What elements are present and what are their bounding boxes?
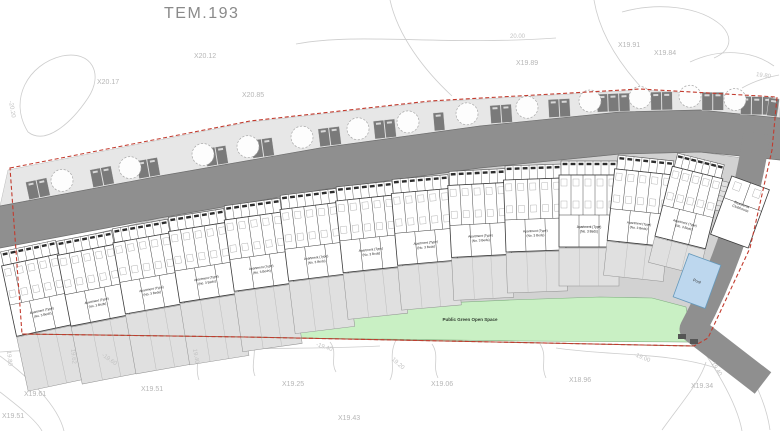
tree-icon [724, 89, 746, 111]
stall-label-mark [579, 163, 584, 165]
stall-label-mark [338, 188, 343, 191]
contour-line [556, 348, 716, 368]
stall-label-mark [402, 180, 407, 183]
stall-marking [716, 94, 721, 96]
stall-marking [551, 101, 556, 103]
stall-label-mark [523, 167, 528, 170]
stall-label-mark [418, 179, 423, 182]
contour-line [432, 344, 438, 378]
stall-label-mark [410, 179, 415, 182]
stall-label-mark [459, 173, 464, 176]
contour-line [662, 362, 706, 430]
stall-label-mark [394, 181, 399, 184]
stall-label-mark [507, 168, 512, 171]
stall-marking [492, 107, 497, 109]
stall-label-mark [370, 185, 375, 188]
parking-bay-group [597, 93, 630, 112]
stall-label-mark [595, 163, 600, 165]
stall-label-mark [667, 162, 672, 165]
site-plan-drawing: Apartment (Type)(No. 3 Beds)Apartment (T… [0, 0, 780, 431]
stall-label-mark [386, 183, 391, 186]
block-label-line1: Apartment (Type) [577, 225, 602, 229]
tree-icon [456, 103, 478, 125]
stall-marking [621, 95, 626, 97]
site-plan: Apartment (Type)(No. 3 Beds)Apartment (T… [0, 0, 780, 431]
stall-label-mark [635, 159, 640, 162]
stall-label-mark [563, 163, 568, 165]
contour-line [690, 53, 774, 66]
stall-label-mark [491, 171, 496, 174]
stall-label-mark [426, 178, 431, 181]
stall-label-mark [354, 186, 359, 189]
tree-icon [51, 169, 73, 191]
stall-label-mark [378, 184, 383, 187]
garden [452, 255, 514, 300]
contour-line [742, 75, 779, 88]
stall-label-mark [515, 167, 520, 170]
stall-marking [562, 101, 567, 103]
contour-line [540, 344, 546, 378]
contour-line [594, 0, 640, 86]
stall-label-mark [619, 157, 624, 160]
tree-icon [679, 85, 701, 107]
stall-marking [754, 99, 759, 101]
stall-label-mark [571, 163, 576, 165]
stall-label-mark [539, 166, 544, 169]
stall-label-mark [651, 160, 656, 163]
contour-line [390, 0, 452, 96]
tree-icon [397, 111, 419, 133]
contour-line [330, 342, 336, 372]
block-label-line2: (No. 3 Beds) [526, 233, 544, 238]
stall-label-mark [475, 172, 480, 175]
garden [506, 251, 567, 293]
stall-label-mark [531, 167, 536, 170]
stall-label-mark [362, 186, 367, 189]
stall-label-mark [483, 171, 488, 174]
contour-line [296, 38, 556, 44]
stall-label-mark [627, 158, 632, 161]
stall-label-mark [434, 177, 439, 180]
stall-label-mark [451, 173, 456, 176]
stall-marking [503, 106, 508, 108]
garden [398, 261, 462, 310]
site-marker [678, 334, 686, 339]
stall-marking [705, 94, 710, 96]
stall-label-mark [555, 166, 560, 169]
stall-label-mark [442, 176, 447, 179]
stall-label-mark [467, 172, 472, 175]
parking-bay-group [433, 112, 445, 131]
contour-line [0, 392, 42, 431]
site-marker [690, 339, 698, 344]
tree-icon [347, 118, 369, 140]
stall-label-mark [611, 163, 616, 165]
stall-label-mark [346, 187, 351, 190]
tree-icon [291, 126, 313, 148]
tree-icon [579, 90, 601, 112]
contour-line [622, 7, 729, 58]
stall-label-mark [499, 170, 504, 173]
stall-label-mark [659, 161, 664, 164]
tree-icon [516, 96, 538, 118]
contour-line [20, 55, 95, 136]
block-label-line2: (No. 3 Beds) [580, 230, 598, 234]
tree-icon [192, 143, 214, 165]
tree-icon [119, 157, 141, 179]
garden [343, 267, 407, 319]
stall-marking [610, 96, 615, 98]
stall-label-mark [547, 166, 552, 169]
contour-line [390, 340, 396, 380]
stall-label-mark [587, 163, 592, 165]
stall-label-mark [603, 163, 608, 165]
stall-marking [664, 94, 669, 96]
tree-icon [237, 136, 259, 158]
stall-label-mark [643, 160, 648, 163]
stall-marking [653, 94, 658, 96]
building-footprint [391, 188, 457, 265]
parking-bay-group [767, 98, 780, 117]
